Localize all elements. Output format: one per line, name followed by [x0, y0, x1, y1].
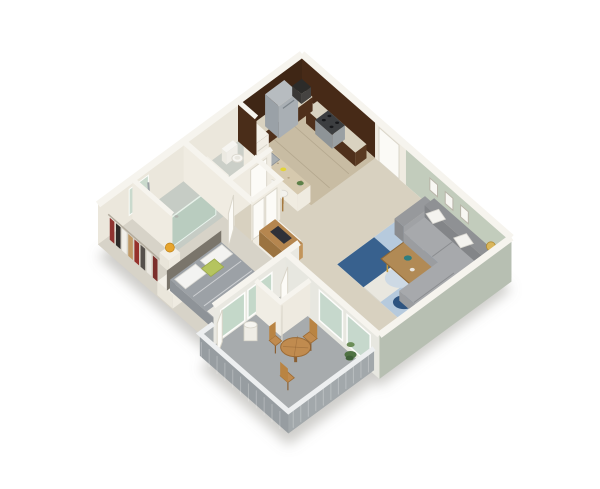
balcony-plant: [347, 342, 355, 347]
hanging-clothes: [141, 245, 146, 271]
bar-plant: [297, 181, 304, 185]
hanging-clothes: [110, 218, 115, 244]
stove-burner: [330, 126, 334, 128]
stove-burner: [327, 115, 331, 117]
floorplan-scene: [98, 54, 511, 445]
table-lamp-amber: [165, 243, 174, 252]
hanging-clothes: [147, 250, 152, 276]
hanging-clothes: [122, 229, 127, 255]
toilet-seat: [234, 156, 240, 160]
apartment-3d-floorplan-render: [0, 0, 600, 489]
lemon-bowl: [280, 167, 286, 171]
hanging-clothes: [128, 234, 133, 260]
shower-drain: [174, 215, 178, 218]
stove-burner: [335, 121, 339, 123]
table-decor-teal: [404, 255, 412, 260]
bar-granite-speckle: [287, 177, 289, 178]
table-decor-candle: [410, 268, 415, 271]
hanging-clothes: [153, 256, 158, 282]
hanging-clothes: [116, 223, 121, 249]
balcony-plant: [346, 356, 354, 361]
hanging-clothes: [134, 239, 139, 265]
screenshot-root: [0, 0, 600, 489]
stove-burner: [322, 119, 326, 121]
bar-granite-speckle: [277, 163, 279, 164]
water-heater-cylinder: [244, 321, 257, 328]
